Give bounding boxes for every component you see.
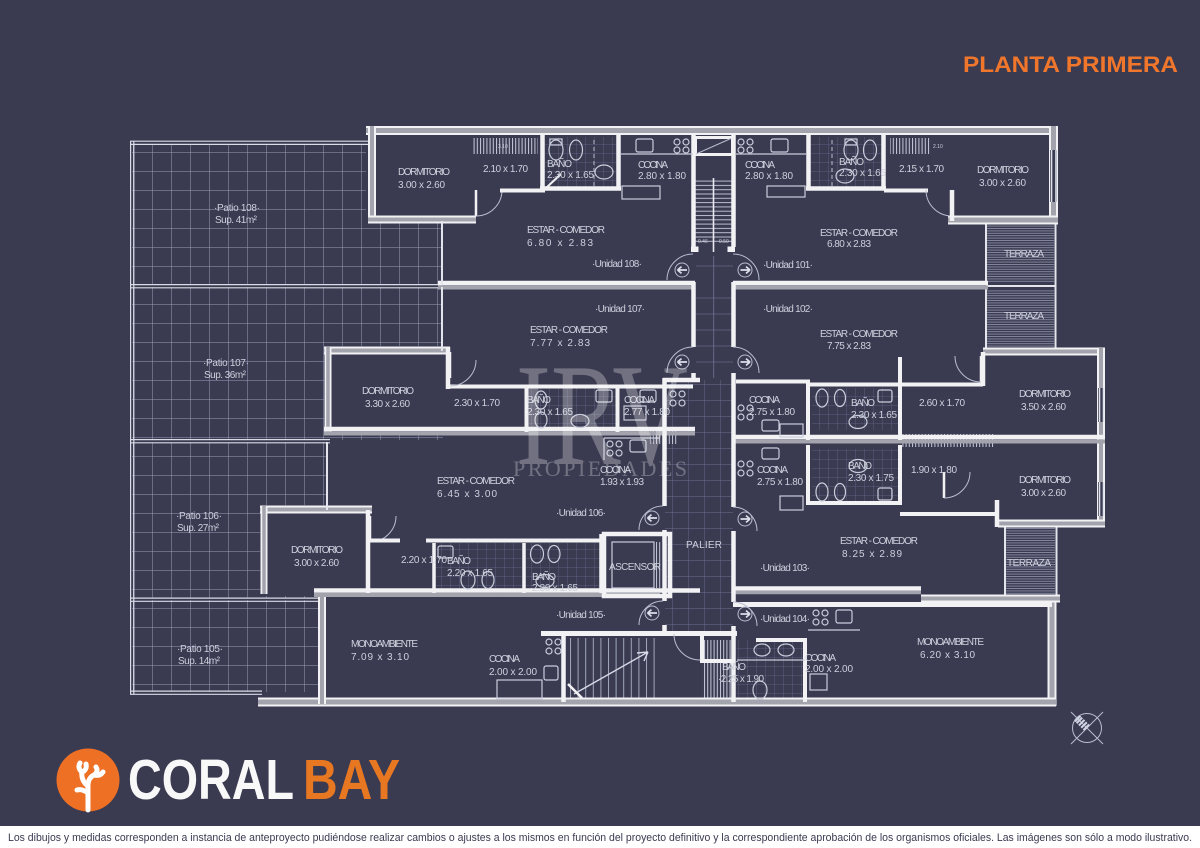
svg-text:Sup. 14m²: Sup. 14m² <box>178 656 221 667</box>
svg-text:3.00 x 2.60: 3.00 x 2.60 <box>294 558 339 569</box>
svg-text:2.80 x 1.80: 2.80 x 1.80 <box>745 171 793 182</box>
svg-text:2.30 x 1.65: 2.30 x 1.65 <box>547 170 594 181</box>
svg-text:ESTAR - COMEDOR: ESTAR - COMEDOR <box>820 228 898 239</box>
svg-text:2.20 x 1.65: 2.20 x 1.65 <box>447 568 493 579</box>
svg-text:2.80 x 1.80: 2.80 x 1.80 <box>638 171 686 182</box>
svg-text:·Unidad 107·: ·Unidad 107· <box>595 304 645 315</box>
svg-text:6.20 x 3.10: 6.20 x 3.10 <box>920 650 975 661</box>
svg-text:Sup. 36m²: Sup. 36m² <box>204 370 247 381</box>
svg-text:COCINA: COCINA <box>757 465 788 476</box>
svg-text:7.75 x 2.83: 7.75 x 2.83 <box>827 341 871 352</box>
svg-text:7.09 x 3.10: 7.09 x 3.10 <box>351 652 409 663</box>
svg-text:Los dibujos y medidas correspo: Los dibujos y medidas corresponden a ins… <box>8 832 1192 844</box>
svg-text:·Unidad 105·: ·Unidad 105· <box>556 610 606 621</box>
svg-text:·Unidad 101·: ·Unidad 101· <box>763 260 813 271</box>
svg-text:2.30 x 1.65: 2.30 x 1.65 <box>851 410 897 421</box>
svg-text:MONOAMBIENTE: MONOAMBIENTE <box>351 639 418 650</box>
svg-text:1.90 x 1.80: 1.90 x 1.80 <box>911 465 957 476</box>
svg-text:2.30 x 1.65: 2.30 x 1.65 <box>532 583 578 594</box>
svg-text:2.10: 2.10 <box>933 144 943 150</box>
svg-text:2.75 x 1.80: 2.75 x 1.80 <box>749 407 795 418</box>
svg-text:TERRAZA: TERRAZA <box>1007 558 1051 569</box>
svg-text:BAÑO: BAÑO <box>839 155 864 168</box>
svg-text:PLANTA PRIMERA: PLANTA PRIMERA <box>963 52 1178 77</box>
svg-text:8.25 x 2.89: 8.25 x 2.89 <box>842 549 902 560</box>
svg-text:BAÑO: BAÑO <box>851 396 875 409</box>
svg-text:·Patio 108·: ·Patio 108· <box>214 203 260 214</box>
svg-text:3.00 x 2.60: 3.00 x 2.60 <box>1021 488 1066 499</box>
svg-text:3.10: 3.10 <box>498 144 508 150</box>
svg-text:2.30 x 1.70: 2.30 x 1.70 <box>454 398 500 409</box>
svg-text:3.00 x 2.60: 3.00 x 2.60 <box>398 180 445 191</box>
svg-text:BAÑO: BAÑO <box>547 157 572 170</box>
svg-text:·Unidad 106·: ·Unidad 106· <box>556 508 606 519</box>
svg-text:3.50 x 2.60: 3.50 x 2.60 <box>1021 402 1066 413</box>
svg-text:·Unidad 102·: ·Unidad 102· <box>763 304 813 315</box>
svg-text:PALIER: PALIER <box>686 540 722 551</box>
svg-text:2.00 x 2.00: 2.00 x 2.00 <box>489 667 537 678</box>
svg-text:ESTAR - COMEDOR: ESTAR - COMEDOR <box>527 225 605 236</box>
svg-text:ASCENSOR: ASCENSOR <box>609 562 661 573</box>
svg-text:2.60 x 1.70: 2.60 x 1.70 <box>919 398 965 409</box>
svg-text:·Unidad 104·: ·Unidad 104· <box>760 614 810 625</box>
svg-text:TERRAZA: TERRAZA <box>1004 311 1044 322</box>
svg-text:DORMITORIO: DORMITORIO <box>1019 389 1071 400</box>
svg-text:ESTAR - COMEDOR: ESTAR - COMEDOR <box>820 329 898 340</box>
svg-text:COCINA: COCINA <box>745 160 775 171</box>
svg-text:2.00 x 2.00: 2.00 x 2.00 <box>805 664 853 675</box>
svg-text:2.10 x 1.70: 2.10 x 1.70 <box>483 164 528 175</box>
svg-text:·Unidad 103·: ·Unidad 103· <box>760 563 810 574</box>
svg-text:BAÑO: BAÑO <box>722 660 746 673</box>
svg-text:3.30 x 2.60: 3.30 x 2.60 <box>365 399 410 410</box>
svg-text:MONOAMBIENTE: MONOAMBIENTE <box>917 637 984 648</box>
svg-text:BAY: BAY <box>303 748 400 812</box>
svg-text:DORMITORIO: DORMITORIO <box>398 167 450 178</box>
svg-text:·Patio 107·: ·Patio 107· <box>203 358 249 369</box>
svg-text:2.30 x 1.75: 2.30 x 1.75 <box>848 473 894 484</box>
svg-text:2.20 x 1.70: 2.20 x 1.70 <box>401 555 447 566</box>
svg-text:Sup. 27m²: Sup. 27m² <box>177 523 220 534</box>
svg-text:ESTAR - COMEDOR: ESTAR - COMEDOR <box>437 476 515 487</box>
svg-text:COCINA: COCINA <box>638 160 668 171</box>
svg-text:2.75 x 1.80: 2.75 x 1.80 <box>757 477 803 488</box>
svg-text:BAÑO: BAÑO <box>447 554 471 567</box>
svg-text:0.46: 0.46 <box>698 239 708 245</box>
svg-text:6.80 x 2.83: 6.80 x 2.83 <box>827 239 871 250</box>
svg-text:·2.25 x 1.90: ·2.25 x 1.90 <box>718 674 764 685</box>
svg-text:COCINA: COCINA <box>805 653 836 664</box>
svg-text:DORMITORIO: DORMITORIO <box>1019 475 1071 486</box>
svg-text:DORMITORIO: DORMITORIO <box>977 165 1029 176</box>
svg-text:COCINA: COCINA <box>489 654 520 665</box>
svg-text:CORAL: CORAL <box>128 748 294 812</box>
svg-text:DORMITORIO: DORMITORIO <box>362 386 414 397</box>
svg-text:6.80 x 2.83: 6.80 x 2.83 <box>527 238 593 249</box>
svg-text:·Unidad 108·: ·Unidad 108· <box>592 259 642 270</box>
svg-text:·Patio 106·: ·Patio 106· <box>176 511 222 522</box>
svg-text:2.15 x 1.70: 2.15 x 1.70 <box>899 164 944 175</box>
svg-text:BAÑO: BAÑO <box>848 459 872 472</box>
svg-text:DORMITORIO: DORMITORIO <box>291 545 343 556</box>
svg-text:ESTAR - COMEDOR: ESTAR - COMEDOR <box>840 536 918 547</box>
svg-text:3.00 x 2.60: 3.00 x 2.60 <box>979 178 1026 189</box>
svg-text:0.50: 0.50 <box>719 239 729 245</box>
svg-text:·Patio 105·: ·Patio 105· <box>177 644 223 655</box>
svg-text:2.30 x 1.65: 2.30 x 1.65 <box>839 168 886 179</box>
svg-text:6.45 x 3.00: 6.45 x 3.00 <box>437 489 497 500</box>
svg-text:PROPIEDADES: PROPIEDADES <box>513 456 691 481</box>
svg-text:Sup. 41m²: Sup. 41m² <box>215 215 258 226</box>
svg-text:TERRAZA: TERRAZA <box>1004 249 1044 260</box>
svg-text:BAÑO: BAÑO <box>532 570 556 583</box>
svg-text:COCINA: COCINA <box>749 395 780 406</box>
